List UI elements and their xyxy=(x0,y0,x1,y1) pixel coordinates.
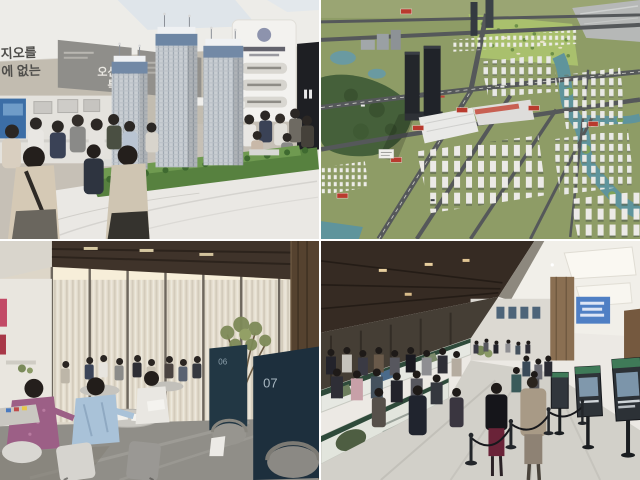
tower-right xyxy=(203,27,243,166)
photo-collage: 지오를 에 없는 오션뷰 특권 xyxy=(0,0,640,480)
wall-poster-2 xyxy=(0,335,6,355)
booth-number-07: 07 xyxy=(263,375,277,390)
wall-headline-top: 지오를 xyxy=(1,45,37,61)
booth-number-06: 06 xyxy=(218,357,227,366)
tower-center xyxy=(156,13,198,168)
wall-poster xyxy=(0,299,7,327)
photo-model-house-scale-model: 지오를 에 없는 오션뷰 특권 xyxy=(0,0,319,239)
booth-06: 06 xyxy=(209,345,247,431)
photo-city-masterplan-diorama xyxy=(321,0,640,239)
photo-consultation-lounge: 06 07 xyxy=(0,241,319,480)
info-sign-white xyxy=(379,149,394,158)
banner-logo-icon xyxy=(257,28,271,42)
blue-banner-sign xyxy=(576,297,610,324)
wall-headline-bottom: 에 없는 xyxy=(1,63,41,79)
photo-crowded-exhibition-hall xyxy=(321,241,640,480)
